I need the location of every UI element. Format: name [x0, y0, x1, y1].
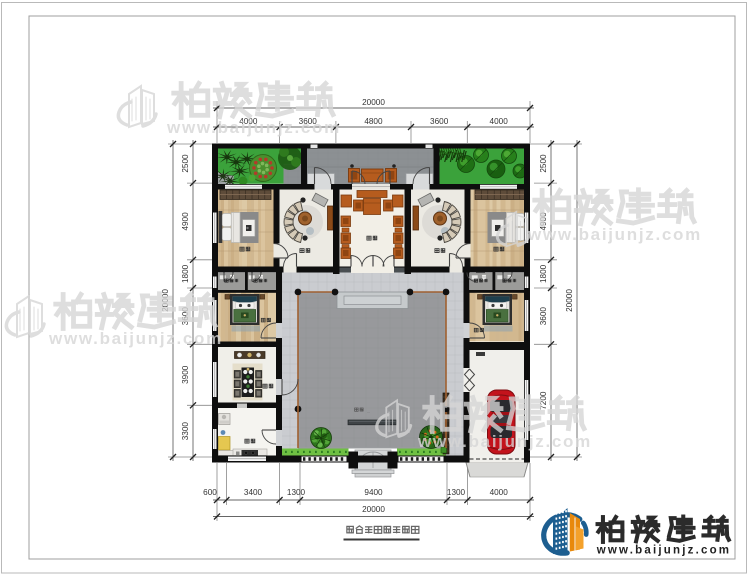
- svg-text:4800: 4800: [364, 117, 383, 126]
- svg-text:4900: 4900: [181, 212, 190, 231]
- svg-text:4000: 4000: [490, 117, 509, 126]
- svg-text:www.baijunjz.com: www.baijunjz.com: [527, 225, 702, 244]
- svg-text:4000: 4000: [490, 488, 509, 497]
- svg-text:www.baijunjz.com: www.baijunjz.com: [417, 432, 592, 451]
- svg-text:3300: 3300: [181, 422, 190, 441]
- svg-text:3400: 3400: [244, 488, 263, 497]
- svg-text:2500: 2500: [539, 154, 548, 173]
- svg-text:www.baijunjz.com: www.baijunjz.com: [48, 329, 223, 348]
- svg-text:9400: 9400: [364, 488, 383, 497]
- svg-text:3600: 3600: [430, 117, 449, 126]
- svg-text:1800: 1800: [181, 264, 190, 283]
- svg-text:3600: 3600: [539, 307, 548, 326]
- svg-text:3900: 3900: [181, 365, 190, 384]
- svg-text:1300: 1300: [287, 488, 306, 497]
- svg-text:20000: 20000: [362, 505, 385, 514]
- svg-text:www.baijunjz.com: www.baijunjz.com: [166, 118, 341, 137]
- svg-text:600: 600: [203, 488, 217, 497]
- svg-text:20000: 20000: [362, 98, 385, 107]
- svg-text:1300: 1300: [447, 488, 466, 497]
- svg-text:1800: 1800: [539, 264, 548, 283]
- svg-text:www.baijunjz.com: www.baijunjz.com: [596, 545, 731, 557]
- svg-text:...: ...: [367, 409, 370, 414]
- svg-text:2500: 2500: [181, 154, 190, 173]
- svg-text:20000: 20000: [565, 289, 574, 312]
